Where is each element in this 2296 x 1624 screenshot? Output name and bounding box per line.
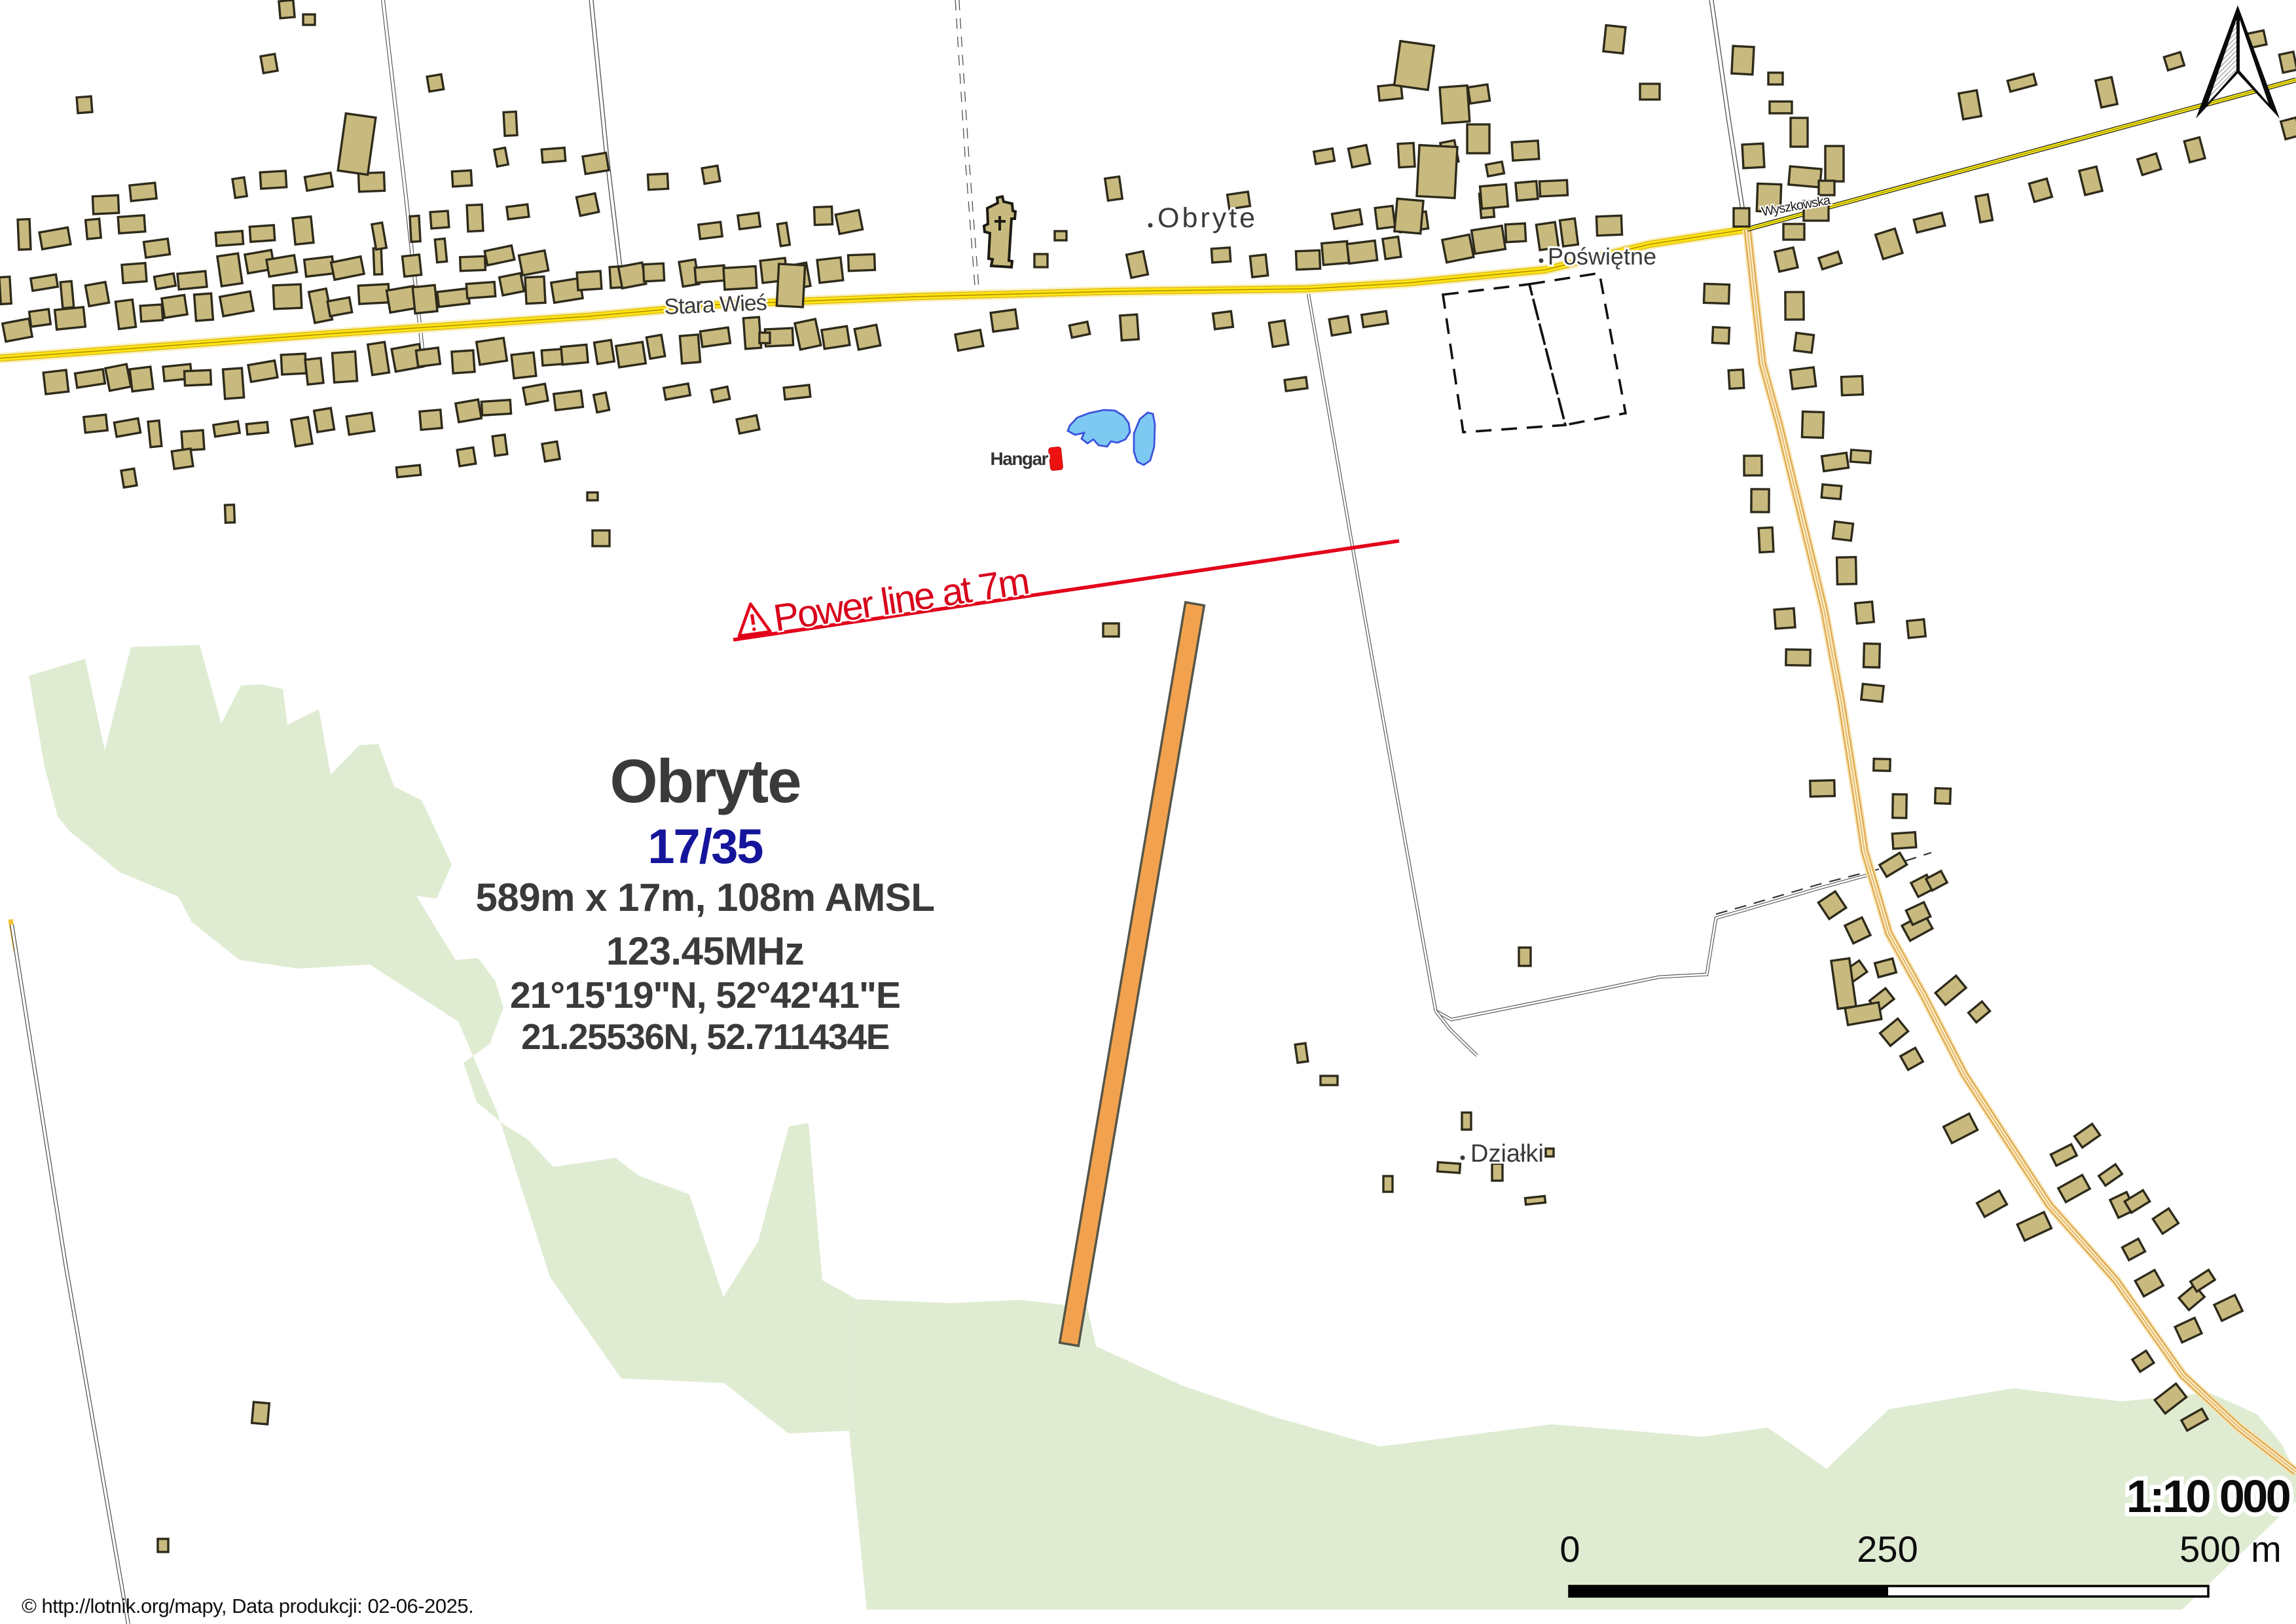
svg-text:1:10 000: 1:10 000	[2126, 1471, 2290, 1522]
svg-text:© http://lotnik.org/mapy, Data: © http://lotnik.org/mapy, Data produkcji…	[22, 1595, 473, 1617]
svg-text:21°15'19"N, 52°42'41"E: 21°15'19"N, 52°42'41"E	[510, 974, 900, 1016]
svg-text:Poświętne: Poświętne	[1548, 243, 1656, 270]
svg-text:Stara Wieś: Stara Wieś	[664, 290, 767, 320]
svg-text:500 m: 500 m	[2179, 1528, 2282, 1570]
svg-text:589m x 17m, 108m AMSL: 589m x 17m, 108m AMSL	[476, 876, 935, 919]
svg-text:Obryte: Obryte	[610, 747, 801, 815]
svg-text:0: 0	[1559, 1528, 1580, 1570]
svg-text:17/35: 17/35	[647, 819, 763, 874]
svg-text:21.25536N, 52.711434E: 21.25536N, 52.711434E	[521, 1016, 889, 1057]
svg-text:250: 250	[1857, 1528, 1918, 1570]
svg-text:123.45MHz: 123.45MHz	[606, 929, 804, 973]
svg-text:Działki: Działki	[1470, 1140, 1544, 1168]
svg-text:Obryte: Obryte	[1157, 202, 1258, 234]
svg-text:Hangar: Hangar	[991, 449, 1049, 469]
